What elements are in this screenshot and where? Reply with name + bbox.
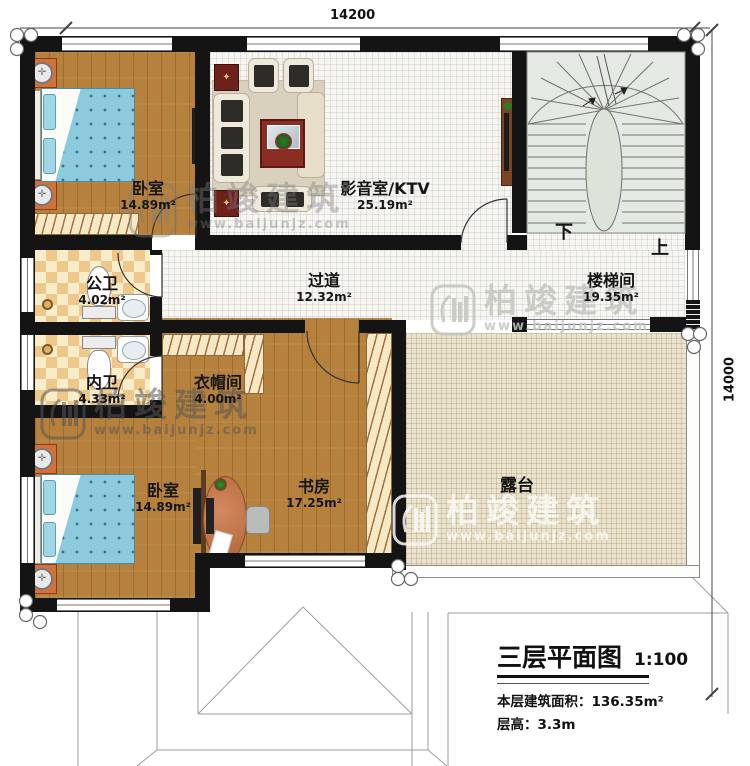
toilet-tank [82, 306, 116, 319]
window [527, 319, 650, 330]
desk-monitor [206, 498, 214, 534]
tv-screen [504, 113, 509, 171]
window [21, 335, 34, 390]
stair-up-label: 上 [651, 234, 669, 260]
room-label-stair-hall: 楼梯间19.35m² [583, 272, 639, 304]
floor-height-text: 层高：3.3m [497, 718, 688, 733]
bed-pillow [43, 480, 56, 515]
tv-screen [193, 488, 201, 544]
plant-icon [275, 133, 292, 150]
room-label-hallway: 过道12.32m² [296, 272, 352, 304]
window [21, 477, 34, 563]
room-label-public-bath: 公卫4.02m² [78, 275, 125, 307]
room-label-terrace: 露台 [500, 477, 534, 496]
sofa-bottom [252, 186, 312, 212]
plant-icon [504, 102, 512, 110]
room-label-private-bath: 内卫4.33m² [78, 374, 125, 406]
sofa-left [213, 93, 250, 183]
stair-direction-arrows [583, 88, 627, 106]
building-area-text: 本层建筑面积：136.35m² [497, 695, 688, 710]
side-table: ✦ [214, 190, 239, 217]
window [57, 599, 170, 611]
sink-basin [122, 341, 146, 360]
dimension-right: 14000 [723, 350, 738, 410]
wall-flue [686, 300, 700, 332]
toilet-tank [82, 336, 116, 349]
cloakroom-shelf-top [162, 334, 244, 356]
window [245, 555, 365, 567]
dimension-top: 14200 [330, 8, 375, 23]
wall-study-east [392, 320, 406, 570]
wall-stair-south-pier [512, 317, 527, 332]
armchair [283, 58, 314, 93]
floor-plan-canvas: ✛ ✛ ✦ ✦ [0, 0, 750, 766]
coffee-table [260, 119, 305, 168]
wall-mid-horizontal [20, 235, 152, 250]
room-label-study: 书房17.25m² [286, 478, 342, 510]
terrace-railing-bottom [392, 565, 700, 578]
desk-chair [246, 506, 270, 534]
shower-head-icon [42, 299, 53, 310]
sink-counter [117, 336, 149, 363]
room-label-cloakroom: 衣帽间4.00m² [194, 374, 242, 406]
wardrobe [27, 213, 139, 235]
terrace-floor [406, 333, 686, 565]
plan-scale: 1:100 [634, 651, 688, 670]
title-underline [497, 675, 649, 684]
room-label-media-room: 影音室/KTV25.19m² [340, 180, 430, 212]
bed-pillow [43, 522, 56, 557]
bed-pillow [43, 94, 56, 130]
window [21, 258, 34, 312]
stair-treads-right [622, 124, 684, 223]
stair-fan [528, 54, 683, 124]
cloakroom-shelf-right [244, 334, 264, 394]
wall-media-stair [512, 52, 527, 233]
wall-between-baths [20, 322, 162, 335]
shower-head-icon [42, 344, 53, 355]
study-bookshelf [366, 333, 392, 555]
window [687, 250, 699, 300]
wall-bedroom-media [195, 52, 210, 250]
wall-bath-south [20, 405, 162, 418]
stair-down-label: 下 [555, 218, 573, 244]
wall-mid-horizontal [507, 235, 527, 250]
wall-hall-south [150, 320, 305, 333]
plant-icon [214, 478, 227, 491]
wall-jog [195, 553, 210, 612]
wall-bath-east [150, 250, 162, 255]
plan-title: 三层平面图 [497, 645, 622, 670]
room-label-bedroom-top: 卧室14.89m² [120, 180, 176, 212]
room-label-bedroom-bottom: 卧室14.89m² [135, 482, 191, 514]
wall-right [685, 36, 700, 250]
wall-mid-horizontal [196, 235, 461, 250]
window [247, 37, 360, 51]
title-block: 三层平面图 1:100 本层建筑面积：136.35m² 层高：3.3m [497, 645, 688, 733]
armchair [248, 58, 279, 93]
staircase [527, 52, 685, 233]
side-table: ✦ [214, 64, 239, 91]
window [62, 37, 172, 51]
bed-pillow [43, 138, 56, 174]
window [500, 37, 648, 51]
stair-treads-left [528, 124, 586, 223]
terrace-railing-right [686, 333, 700, 577]
